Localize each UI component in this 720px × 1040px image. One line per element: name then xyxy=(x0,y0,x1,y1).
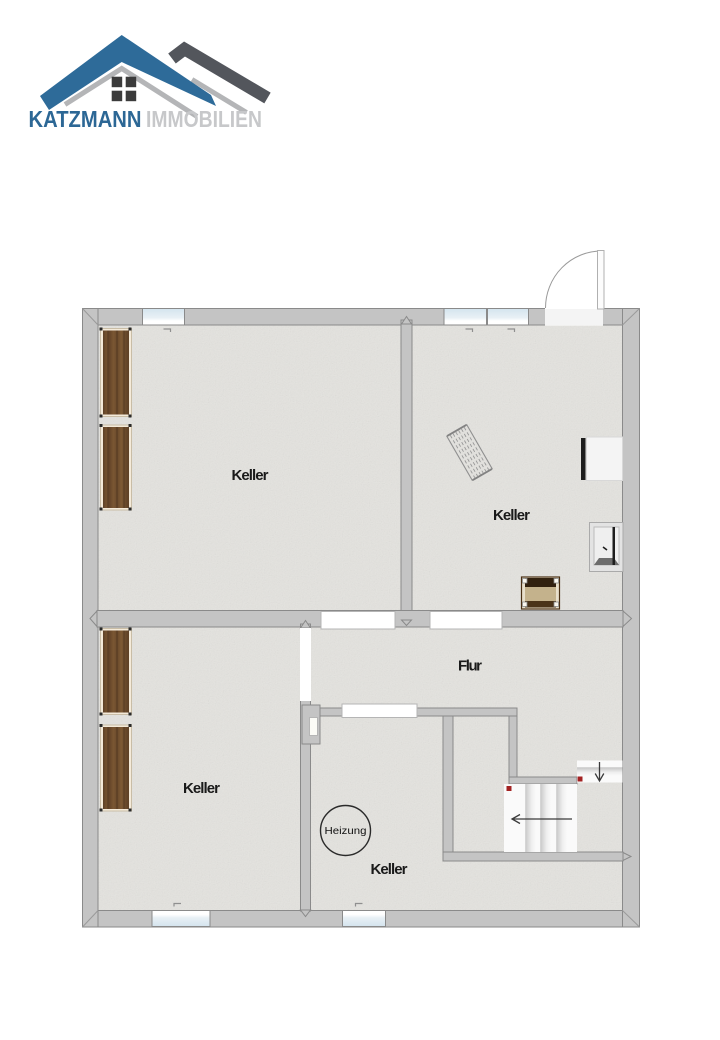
svg-text:Keller: Keller xyxy=(371,861,408,878)
svg-text:Keller: Keller xyxy=(493,507,530,524)
svg-text:KATZMANN: KATZMANN xyxy=(29,106,142,132)
svg-text:Keller: Keller xyxy=(183,780,220,797)
svg-text:IMMOBILIEN: IMMOBILIEN xyxy=(146,106,262,132)
svg-text:Keller: Keller xyxy=(232,467,269,484)
svg-text:Flur: Flur xyxy=(458,658,482,675)
svg-text:Heizung: Heizung xyxy=(325,825,367,837)
